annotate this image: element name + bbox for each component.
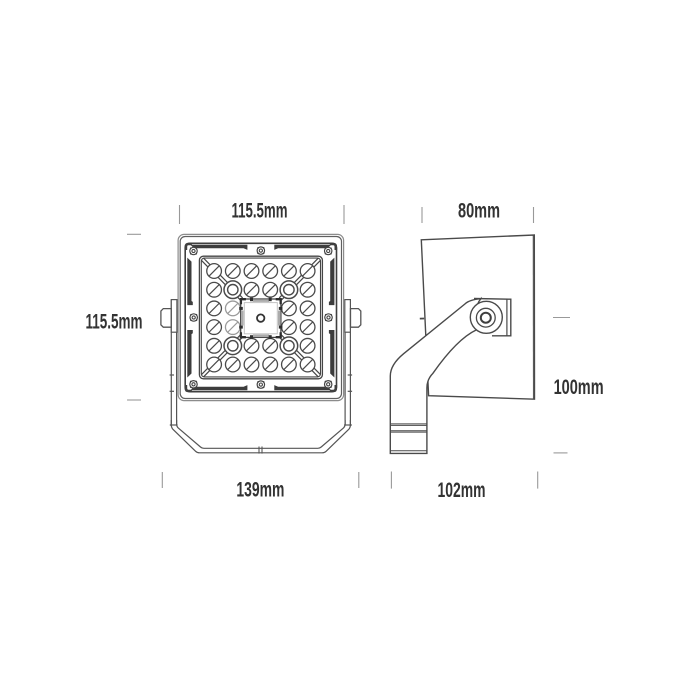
svg-text:139mm: 139mm (236, 479, 284, 502)
svg-text:100mm: 100mm (554, 376, 604, 399)
svg-text:80mm: 80mm (458, 200, 500, 223)
svg-text:115.5mm: 115.5mm (86, 311, 143, 334)
svg-text:102mm: 102mm (438, 479, 486, 502)
svg-text:115.5mm: 115.5mm (232, 200, 288, 223)
